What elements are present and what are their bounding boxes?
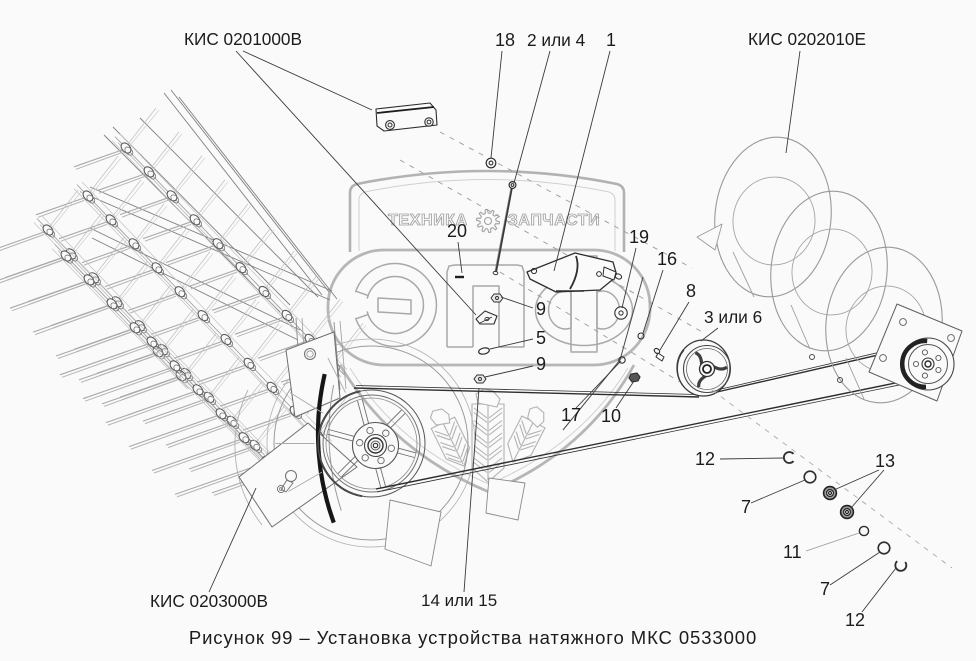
svg-text:Рисунок 99 – Установка устройс: Рисунок 99 – Установка устройства натяжн… — [189, 627, 757, 648]
svg-text:10: 10 — [601, 406, 621, 426]
svg-text:16: 16 — [657, 249, 677, 269]
svg-text:2 или 4: 2 или 4 — [527, 30, 586, 50]
svg-text:13: 13 — [875, 451, 895, 471]
svg-text:18: 18 — [495, 30, 515, 50]
svg-text:17: 17 — [561, 405, 581, 425]
svg-text:20: 20 — [447, 221, 467, 241]
svg-text:7: 7 — [820, 579, 830, 599]
svg-text:12: 12 — [695, 449, 715, 469]
svg-text:9: 9 — [536, 299, 546, 319]
svg-text:1: 1 — [606, 30, 616, 50]
svg-text:ЗАПЧАСТИ: ЗАПЧАСТИ — [508, 212, 601, 229]
svg-text:8: 8 — [686, 281, 696, 301]
svg-text:11: 11 — [783, 542, 802, 562]
svg-text:7: 7 — [741, 497, 751, 517]
svg-text:КИС 0203000В: КИС 0203000В — [150, 591, 268, 611]
svg-text:3 или 6: 3 или 6 — [704, 307, 762, 327]
svg-text:19: 19 — [629, 227, 649, 247]
svg-text:5: 5 — [536, 328, 546, 348]
svg-text:9: 9 — [536, 354, 546, 374]
svg-text:12: 12 — [845, 610, 865, 630]
svg-text:КИС 0202010Е: КИС 0202010Е — [748, 29, 866, 49]
svg-text:КИС 0201000В: КИС 0201000В — [184, 29, 302, 49]
svg-text:14 или 15: 14 или 15 — [421, 591, 497, 610]
